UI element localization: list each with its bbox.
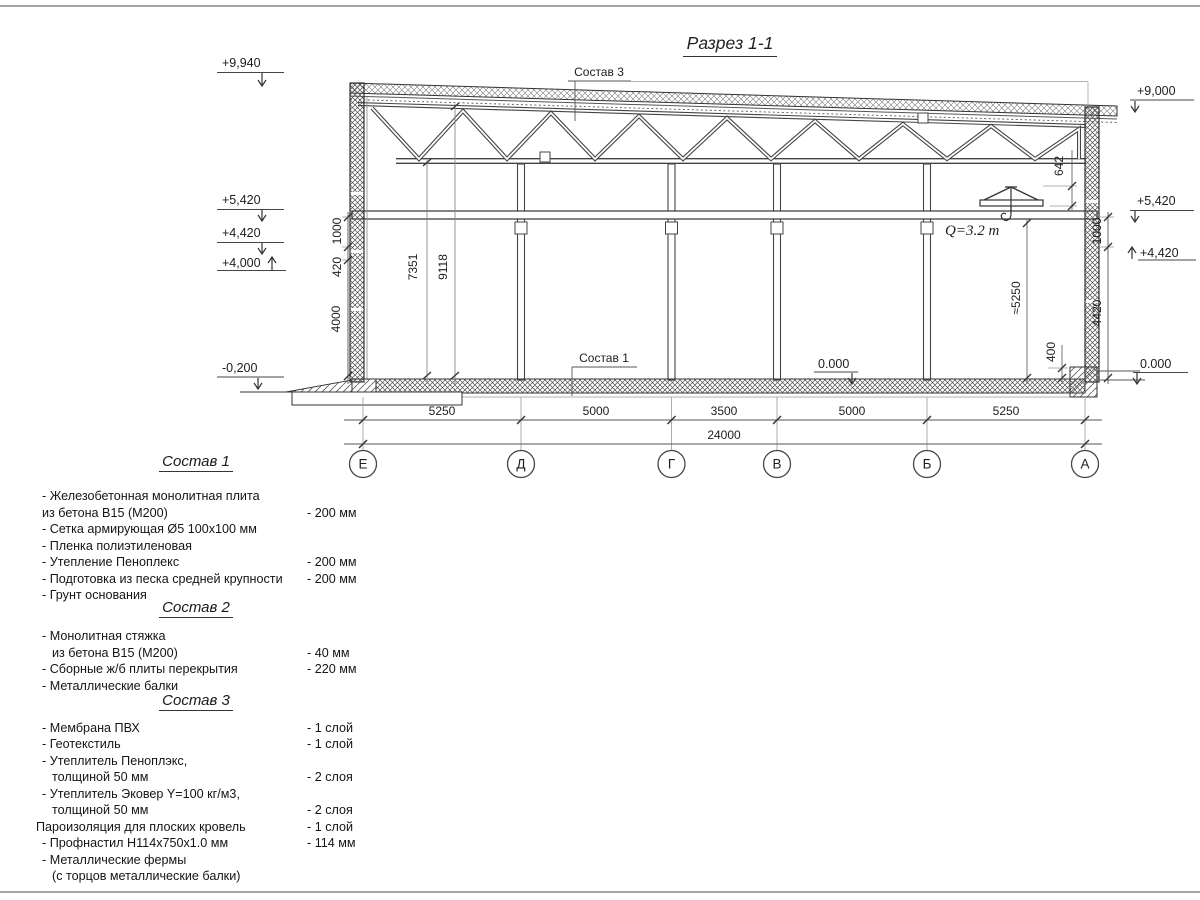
- axis-label: Б: [923, 457, 932, 472]
- axis-label: В: [772, 457, 781, 472]
- material-thickness: - 2 слоя: [307, 770, 353, 784]
- svg-text:0.000: 0.000: [1140, 357, 1171, 371]
- svg-text:642: 642: [1052, 156, 1066, 176]
- dim-chain-total: 24000: [344, 428, 1102, 448]
- material-item: - Железобетонная монолитная плита: [42, 489, 260, 503]
- elev-arrow-down: [254, 378, 262, 389]
- elev-arrow-down: [1131, 211, 1139, 222]
- material-thickness: - 220 мм: [307, 662, 357, 676]
- composition-heading: Состав 1: [130, 453, 262, 472]
- dim-right-wall: 1000 4420 400: [1044, 212, 1114, 384]
- composition-heading: Состав 3: [130, 692, 262, 711]
- material-item: - Мембрана ПВХ: [42, 721, 140, 735]
- material-thickness: - 40 мм: [307, 646, 350, 660]
- elev-arrow-down: [1131, 101, 1139, 112]
- material-item: - Пленка полиэтиленовая: [42, 539, 192, 553]
- material-thickness: - 200 мм: [307, 572, 357, 586]
- truss-splice-plate: [540, 152, 550, 162]
- elev-arrow-up: [268, 257, 276, 270]
- material-item: из бетона В15 (М200): [52, 646, 178, 660]
- material-item: - Подготовка из песка средней крупности: [42, 572, 283, 586]
- composition-heading: Состав 2: [130, 599, 262, 618]
- svg-text:+9,000: +9,000: [1137, 84, 1176, 98]
- right-wall-base: [1070, 367, 1097, 397]
- material-item: - Утеплитель Эковер Y=100 кг/м3,: [42, 787, 240, 801]
- axis-label: А: [1080, 457, 1089, 472]
- floor-slab: [240, 367, 1145, 405]
- svg-text:9118: 9118: [436, 254, 450, 280]
- elev-arrow-up: [1128, 247, 1136, 259]
- material-thickness: - 1 слой: [307, 820, 353, 834]
- svg-text:Состав 1: Состав 1: [579, 351, 629, 365]
- elevation-marks-left: +9,940 +5,420 +4,420 +4,000 -0,200: [217, 56, 286, 389]
- material-thickness: - 114 мм: [307, 836, 356, 850]
- material-item: - Геотекстиль: [42, 737, 121, 751]
- svg-text:+5,420: +5,420: [1137, 194, 1176, 208]
- material-thickness: - 200 мм: [307, 506, 357, 520]
- material-item: из бетона В15 (М200): [42, 506, 168, 520]
- axis-bubbles: Е Д Г В Б А: [350, 451, 1099, 478]
- svg-text:1000: 1000: [330, 217, 344, 244]
- material-thickness: - 1 слой: [307, 737, 353, 751]
- svg-text:420: 420: [330, 257, 344, 277]
- truss-splice-plate: [918, 113, 928, 123]
- svg-text:5000: 5000: [583, 404, 610, 418]
- svg-text:+5,420: +5,420: [222, 193, 261, 207]
- svg-text:1000: 1000: [1090, 217, 1104, 244]
- sheet-border-bottom: [0, 891, 1200, 893]
- section-drawing: Q=3.2 т Состав 3 Состав 1 7351 9118: [0, 0, 1200, 500]
- svg-text:≈5250: ≈5250: [1009, 281, 1023, 315]
- material-item: - Профнастил Н114х750х1.0 мм: [42, 836, 228, 850]
- svg-text:5250: 5250: [429, 404, 456, 418]
- left-apron: [286, 380, 352, 392]
- svg-text:3500: 3500: [711, 404, 738, 418]
- material-item: - Металлические фермы: [42, 853, 186, 867]
- svg-text:+4,420: +4,420: [1140, 246, 1179, 260]
- axis-label: Г: [668, 457, 676, 472]
- svg-text:7351: 7351: [406, 253, 420, 280]
- svg-text:24000: 24000: [707, 428, 741, 442]
- svg-text:0.000: 0.000: [818, 357, 849, 371]
- material-item: (с торцов металлические балки): [52, 869, 240, 883]
- svg-text:5000: 5000: [839, 404, 866, 418]
- svg-text:4000: 4000: [329, 305, 343, 332]
- material-item: - Металлические балки: [42, 679, 178, 693]
- dim-left-wall: 1000 420 4000: [329, 212, 352, 384]
- columns: [518, 164, 931, 380]
- svg-text:5250: 5250: [993, 404, 1020, 418]
- material-item: - Сетка армирующая Ø5 100х100 мм: [42, 522, 257, 536]
- material-item: - Сборные ж/б плиты перекрытия: [42, 662, 238, 676]
- svg-text:+4,420: +4,420: [222, 226, 261, 240]
- axis-label: Е: [358, 457, 367, 472]
- material-thickness: - 1 слой: [307, 721, 353, 735]
- material-thickness: - 2 слоя: [307, 803, 353, 817]
- svg-text:4420: 4420: [1090, 299, 1104, 326]
- axis-label: Д: [516, 457, 525, 472]
- material-thickness: - 200 мм: [307, 555, 357, 569]
- material-item: - Монолитная стяжка: [42, 629, 166, 643]
- roof-truss: [358, 104, 1086, 162]
- material-item: толщиной 50 мм: [52, 770, 148, 784]
- svg-text:400: 400: [1044, 342, 1058, 362]
- left-wall: [350, 83, 367, 382]
- crane-capacity-label: Q=3.2 т: [945, 223, 999, 239]
- dim-hook-travel: ≈5250: [1009, 219, 1031, 384]
- material-item: Пароизоляция для плоских кровель: [36, 820, 246, 834]
- material-item: - Утеплитель Пеноплэкс,: [42, 754, 187, 768]
- elevation-marks-right: +9,000 +5,420 +4,420 0.000: [1128, 84, 1196, 384]
- svg-text:Состав 3: Состав 3: [574, 65, 624, 79]
- svg-text:+9,940: +9,940: [222, 56, 261, 70]
- svg-text:+4,000: +4,000: [222, 256, 261, 270]
- svg-text:-0,200: -0,200: [222, 361, 257, 375]
- material-item: толщиной 50 мм: [52, 803, 148, 817]
- drawing-sheet: Разрез 1-1: [0, 0, 1200, 900]
- elev-arrow-down: [258, 73, 266, 86]
- elev-arrow-down: [1133, 373, 1141, 384]
- elev-arrow-down: [258, 210, 266, 221]
- elev-arrow-down: [258, 243, 266, 254]
- material-item: - Утепление Пеноплекс: [42, 555, 179, 569]
